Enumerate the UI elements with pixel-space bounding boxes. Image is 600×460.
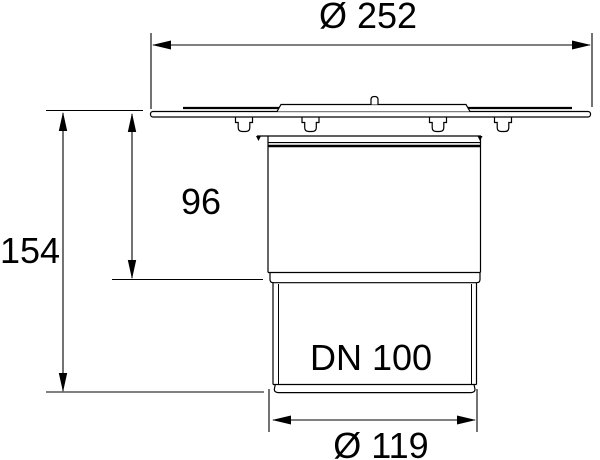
dimension-label-upper-height: 96: [181, 184, 221, 220]
clip: [495, 118, 512, 132]
collar-tick-left: [256, 136, 261, 141]
arrow-down-icon: [59, 373, 67, 392]
flange-assembly: [151, 97, 591, 142]
dimension-label-total-height: 154: [0, 233, 60, 269]
dimension-label-outlet-diameter: Ø 119: [333, 428, 428, 460]
raised-cover-plate: [277, 105, 470, 112]
drawing-canvas: Ø 252 96 154 DN 100 Ø 119: [0, 0, 600, 460]
center-pin: [371, 97, 378, 105]
drain-technical-drawing: [0, 0, 600, 460]
arrow-down-icon: [128, 260, 136, 279]
arrow-right-icon: [572, 41, 591, 50]
clip: [302, 118, 319, 132]
pipe-bottom-lip: [274, 385, 475, 393]
arrow-up-icon: [59, 112, 67, 131]
dimension-label-outlet-size: DN 100: [310, 340, 432, 376]
arrow-up-icon: [128, 113, 136, 132]
clip: [430, 118, 447, 132]
dimension-label-flange-diameter: Ø 252: [319, 0, 417, 34]
body-cylinder: [268, 137, 481, 283]
clip: [236, 118, 253, 132]
arrow-left-icon: [152, 41, 171, 50]
arrow-right-icon: [457, 416, 476, 425]
socket-rim: [270, 273, 480, 283]
flange-plate: [151, 112, 591, 118]
arrow-left-icon: [272, 416, 291, 425]
